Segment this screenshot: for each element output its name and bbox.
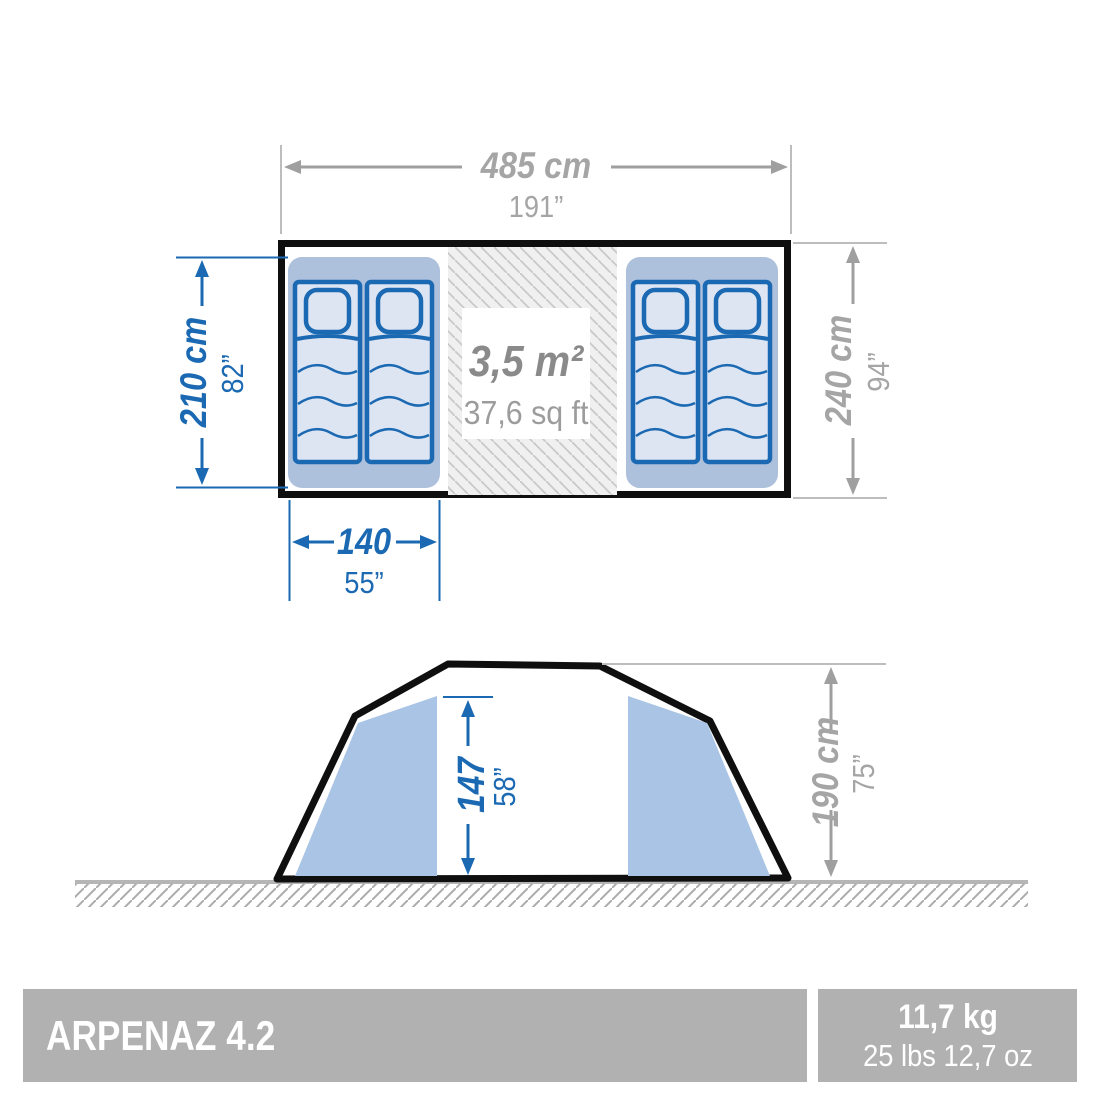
outer-height-metric-label: 190 cm xyxy=(805,717,846,827)
tent-side-panel-right xyxy=(628,696,770,876)
width-metric-label: 485 cm xyxy=(480,145,591,186)
depth-metric-label: 240 cm xyxy=(818,315,859,426)
side-view: 147 58” 190 cm 75” xyxy=(75,664,1028,907)
arrowhead-left-icon xyxy=(292,535,309,549)
product-name-label: ARPENAZ 4.2 xyxy=(46,1013,275,1060)
living-area-imperial-label: 37,6 sq ft xyxy=(464,394,589,431)
bed-width-imperial-label: 55” xyxy=(344,566,383,600)
sleeping-depth-dimension-210: 210 cm 82” xyxy=(173,258,288,488)
sleeping-depth-metric-label: 210 cm xyxy=(173,317,214,428)
inner-height-metric-label: 147 xyxy=(450,755,492,813)
arrowhead-up-icon xyxy=(195,260,209,277)
sleeping-pad xyxy=(367,282,432,462)
sleeping-depth-imperial-label: 82” xyxy=(216,354,250,393)
arrowhead-down-icon xyxy=(195,468,209,485)
arrowhead-up-icon xyxy=(824,667,838,684)
arrowhead-left-icon xyxy=(284,160,301,174)
sleeping-pad xyxy=(295,282,360,462)
bed-width-metric-label: 140 xyxy=(337,521,392,562)
arrowhead-right-icon xyxy=(771,160,788,174)
ground-hatch xyxy=(75,884,1028,907)
width-dimension-485: 485 cm 191” xyxy=(281,145,791,234)
depth-dimension-240: 240 cm 94” xyxy=(793,243,896,498)
sleeping-pad xyxy=(633,282,698,462)
weight-imperial-label: 25 lbs 12,7 oz xyxy=(863,1039,1033,1073)
footer: ARPENAZ 4.2 11,7 kg 25 lbs 12,7 oz xyxy=(23,989,1077,1082)
sleeping-pad xyxy=(705,282,770,462)
arrowhead-down-icon xyxy=(846,478,860,495)
tent-side-panel-left xyxy=(295,696,437,876)
depth-imperial-label: 94” xyxy=(862,352,896,391)
living-area-metric-label: 3,5 m² xyxy=(469,336,584,385)
diagram-canvas: 485 cm 191” 3,5 m² 37,6 sq ft 210 cm 82” xyxy=(0,0,1100,1100)
arrowhead-right-icon xyxy=(420,535,437,549)
weight-metric-label: 11,7 kg xyxy=(898,997,998,1035)
inner-height-imperial-label: 58” xyxy=(488,767,522,806)
arrowhead-up-icon xyxy=(846,246,860,263)
tent-spec-diagram: 485 cm 191” 3,5 m² 37,6 sq ft 210 cm 82” xyxy=(0,0,1100,1100)
width-imperial-label: 191” xyxy=(509,190,564,224)
bed-width-dimension-140: 140 55” xyxy=(290,500,440,601)
outer-height-imperial-label: 75” xyxy=(847,754,881,793)
arrowhead-down-icon xyxy=(824,860,838,877)
floor-plan: 3,5 m² 37,6 sq ft xyxy=(282,244,788,496)
